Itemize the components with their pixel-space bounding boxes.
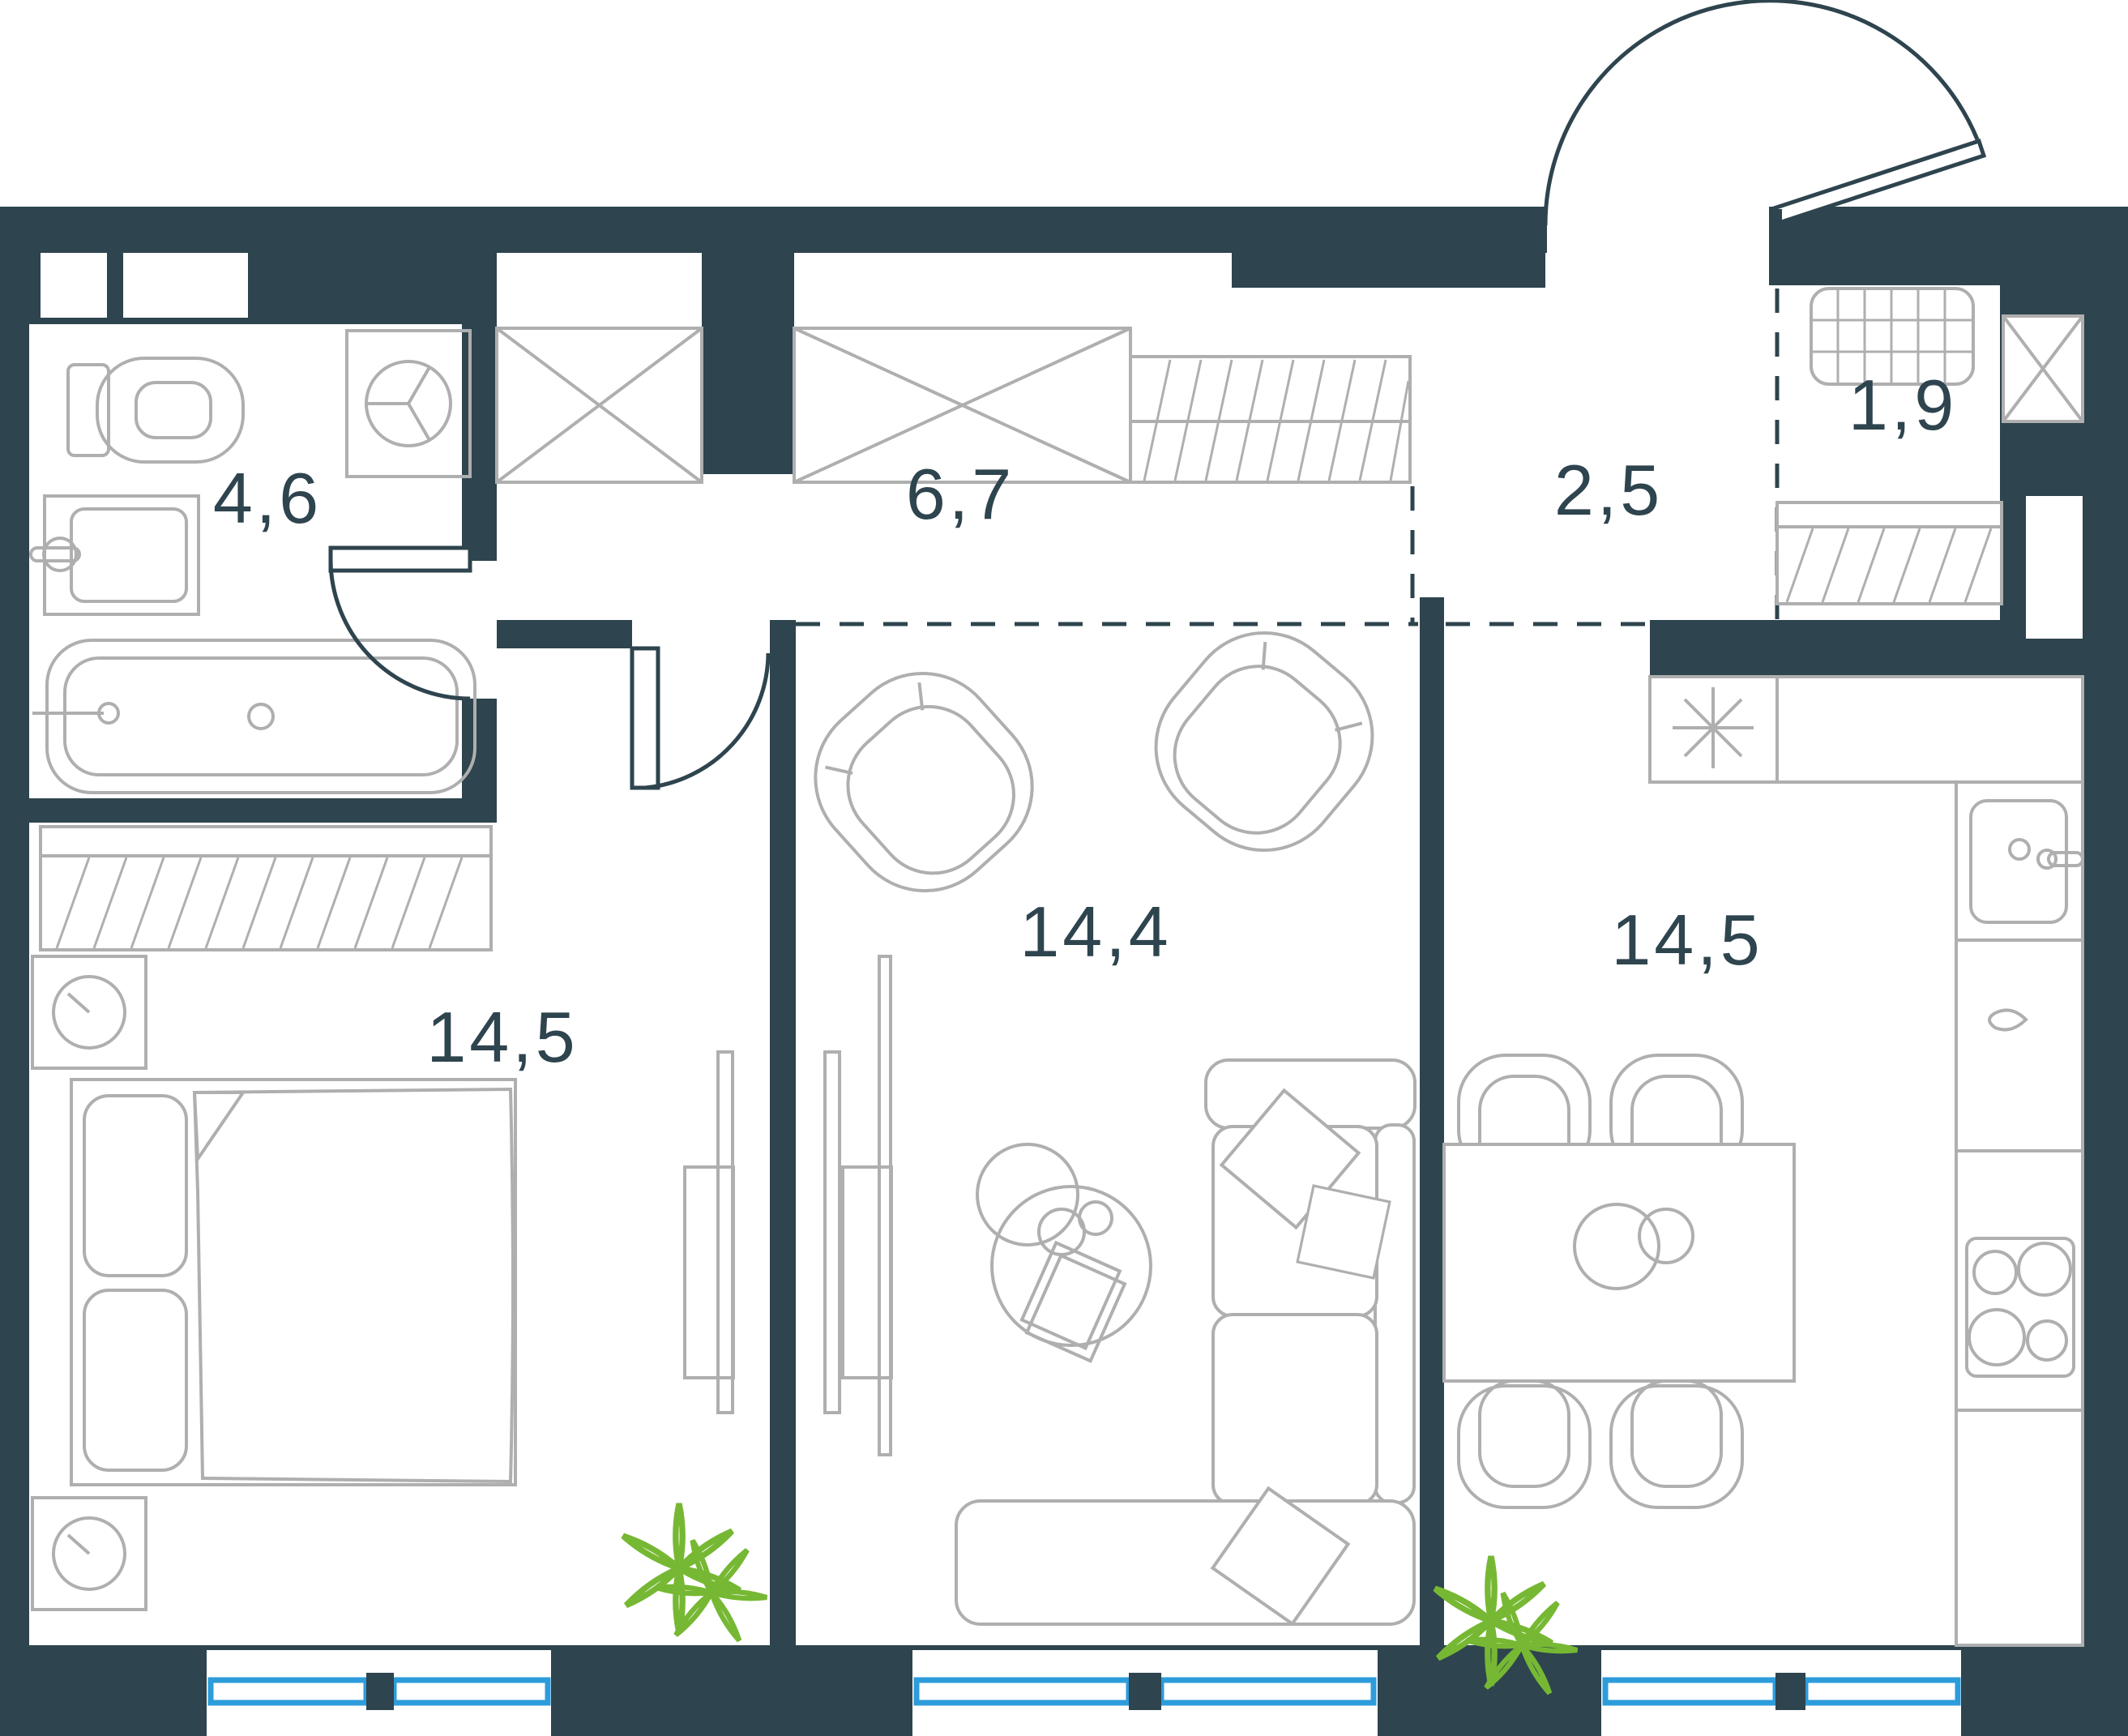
entry-label: 2,5 bbox=[1554, 450, 1663, 530]
bed-icon bbox=[71, 1080, 515, 1485]
bathroom-right-wall-lower bbox=[462, 699, 497, 798]
kitchen-window bbox=[1601, 1650, 1961, 1736]
kitchen-sink-icon bbox=[1971, 801, 2083, 922]
right-wall bbox=[2083, 285, 2128, 1736]
tv-stand-icon bbox=[825, 956, 891, 1455]
kitchen-label: 14,5 bbox=[1611, 900, 1763, 980]
bathroom-right-wall-upper bbox=[462, 324, 497, 561]
bedroom-door bbox=[632, 648, 768, 788]
coffee-table-icon bbox=[977, 1144, 1151, 1361]
top-right-wall bbox=[1769, 207, 2128, 285]
dining-table-icon bbox=[1444, 1144, 1794, 1381]
column bbox=[702, 207, 794, 474]
window-mullion bbox=[1775, 1673, 1805, 1710]
wall-niche bbox=[41, 253, 107, 318]
armchair-icon bbox=[1125, 601, 1404, 882]
bathroom-label: 4,6 bbox=[213, 458, 322, 538]
living-room-label: 14,4 bbox=[1019, 892, 1171, 972]
drain-icon bbox=[1989, 1010, 2026, 1029]
bedroom-living-partition bbox=[770, 620, 796, 1645]
blanket bbox=[194, 1089, 513, 1482]
bathroom-bottom-wall bbox=[29, 798, 497, 823]
blanket-fold bbox=[194, 1092, 243, 1159]
nightstand-icon bbox=[32, 956, 146, 1068]
hallway-label: 6,7 bbox=[906, 454, 1015, 534]
windows bbox=[207, 1650, 1961, 1736]
living-room bbox=[784, 601, 1415, 1624]
stove-icon bbox=[1967, 1238, 2074, 1376]
toilet-icon bbox=[68, 358, 243, 462]
nightstand-icon bbox=[32, 1498, 146, 1610]
living-room-window bbox=[912, 1650, 1378, 1736]
living-kitchen-partition bbox=[1420, 597, 1444, 1645]
star-symbol-icon bbox=[1673, 687, 1754, 768]
bedroom-window bbox=[207, 1650, 551, 1736]
kitchen bbox=[1434, 677, 2083, 1722]
armchair-icon bbox=[784, 642, 1064, 922]
closet-shelf-hatched-icon bbox=[1130, 357, 1410, 482]
washing-machine-icon bbox=[347, 331, 470, 477]
window-mullion bbox=[1129, 1673, 1161, 1710]
bathtub-icon bbox=[32, 640, 475, 793]
wall-niche bbox=[123, 253, 248, 318]
wardrobe-hatched-icon bbox=[1777, 502, 2002, 604]
floor-plan: 4,6 6,7 2,5 1,9 14,5 14,4 14,5 bbox=[0, 0, 2128, 1736]
bathroom bbox=[31, 331, 475, 793]
sink-icon bbox=[31, 496, 199, 614]
closet-crossbox-icon bbox=[497, 328, 702, 482]
dining-chair-icon bbox=[1611, 1381, 1742, 1507]
door-jamb bbox=[1769, 209, 1782, 253]
door-jamb bbox=[1534, 209, 1547, 253]
tv-cabinet-icon bbox=[685, 1052, 733, 1413]
bathroom-door bbox=[331, 548, 470, 699]
plant-icon bbox=[622, 1503, 788, 1669]
pillow-icon bbox=[1297, 1186, 1390, 1278]
dining-chair-icon bbox=[1459, 1381, 1590, 1507]
wardrobe-hatched-icon bbox=[41, 827, 491, 950]
top-wall-thick-segment bbox=[1232, 207, 1545, 288]
vent-shaft-x-icon bbox=[2003, 316, 2083, 421]
left-wall bbox=[0, 207, 29, 1736]
bedroom-top-wall bbox=[497, 620, 632, 648]
window-mullion bbox=[366, 1673, 394, 1710]
wardrobe-label: 1,9 bbox=[1848, 365, 1957, 445]
bedroom-label: 14,5 bbox=[426, 997, 578, 1077]
wall-niche bbox=[2026, 496, 2083, 639]
